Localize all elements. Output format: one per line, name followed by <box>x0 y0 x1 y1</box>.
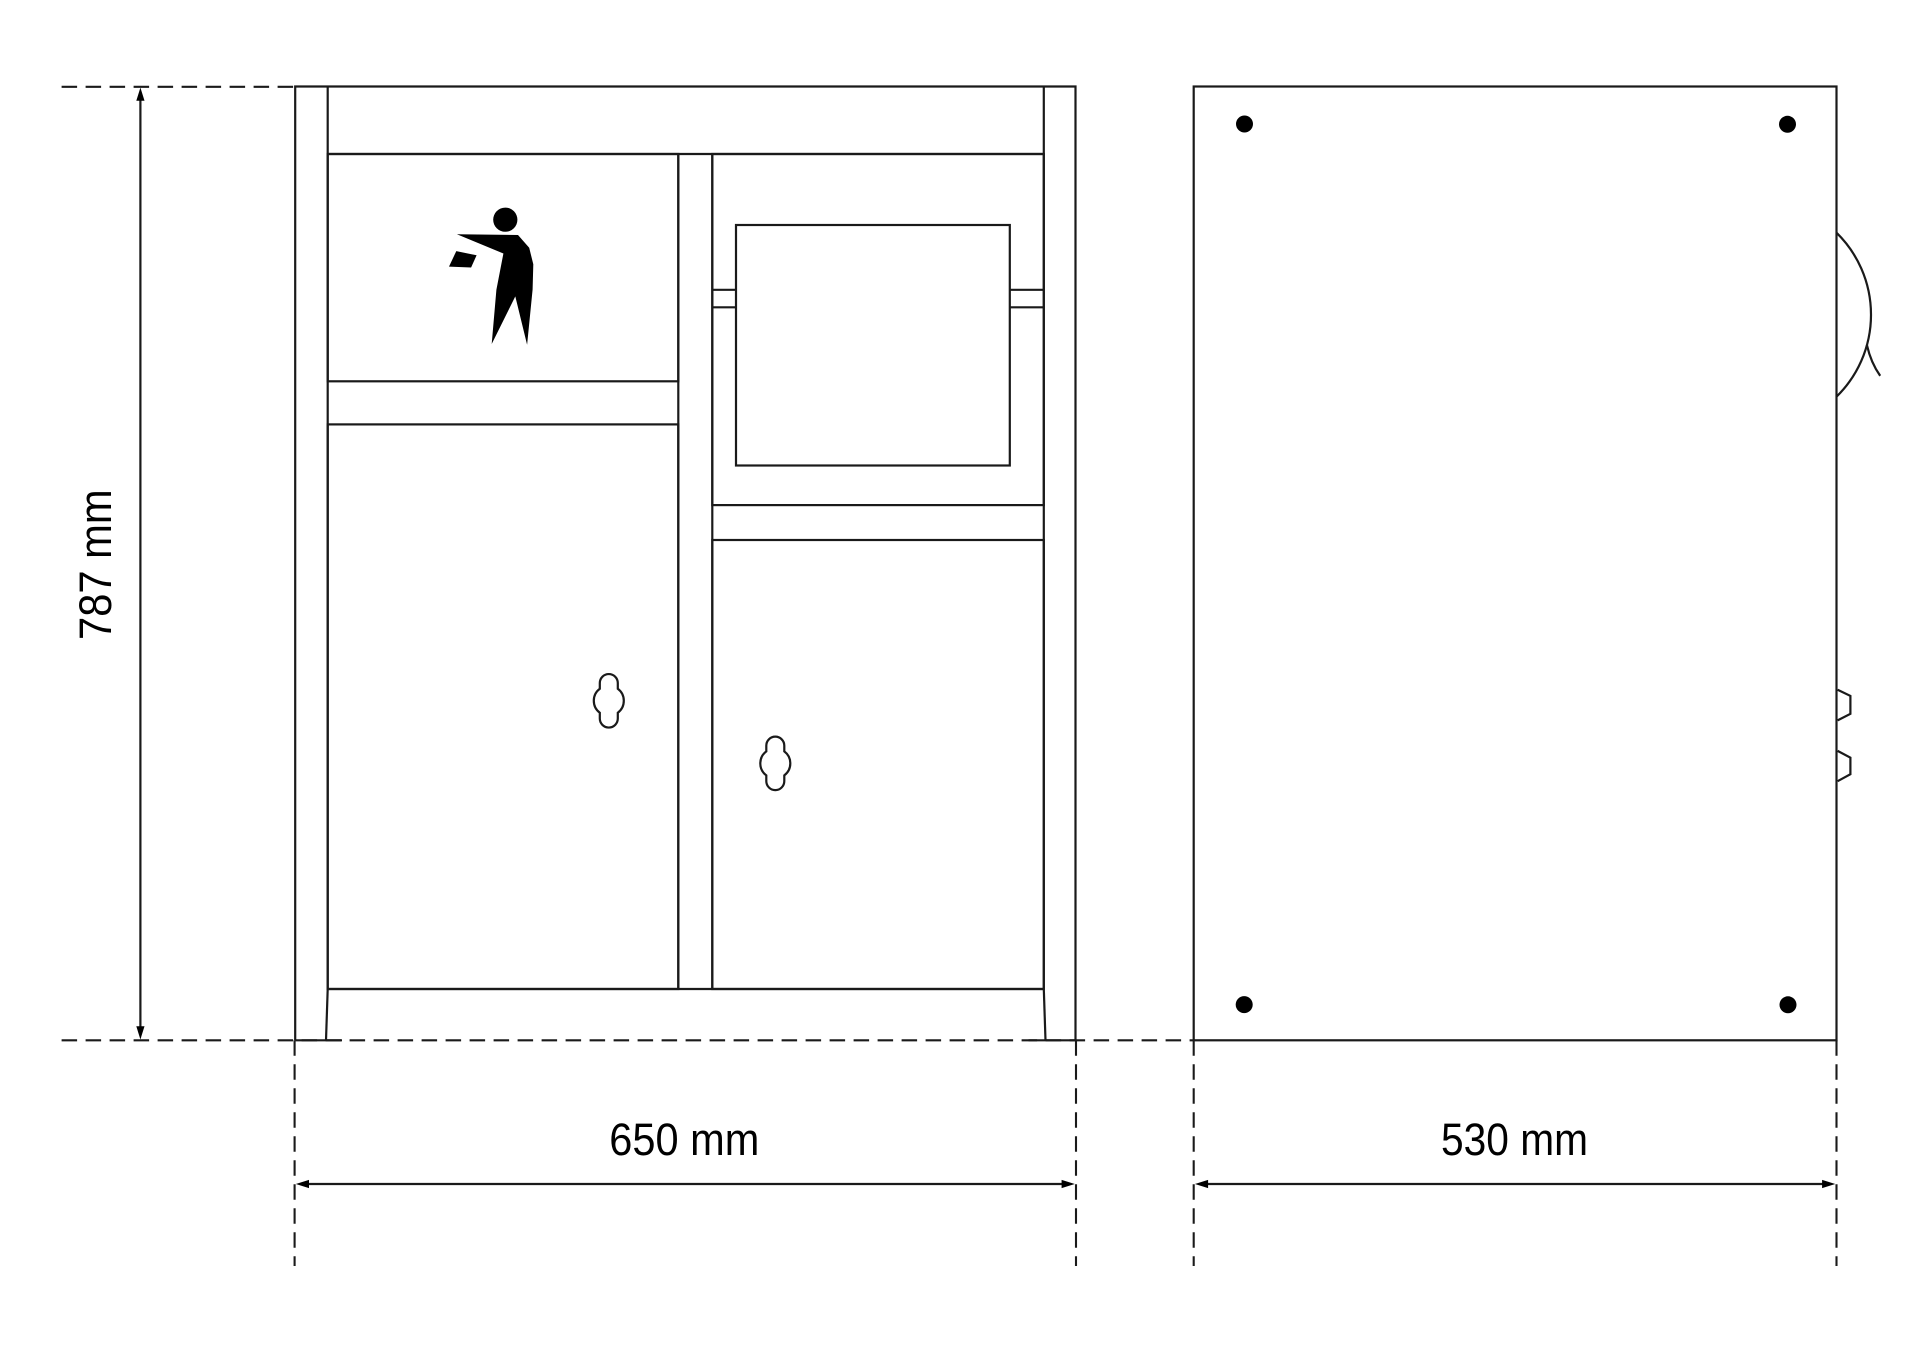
svg-text:530 mm: 530 mm <box>1441 1114 1588 1165</box>
svg-text:787 mm: 787 mm <box>70 489 121 640</box>
svg-text:650 mm: 650 mm <box>609 1114 759 1165</box>
